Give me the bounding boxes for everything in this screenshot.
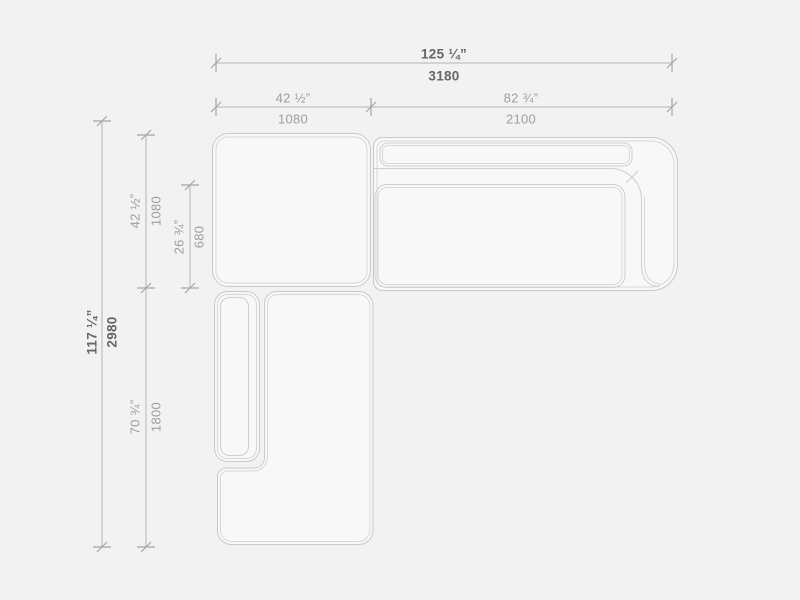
dim-seat-depth-mm: 680	[192, 226, 207, 249]
dim-total-depth-inches: 117 ¼”	[85, 309, 100, 354]
dim-sofa-width-mm: 2100	[506, 112, 536, 127]
dimension-drawing-canvas: 125 ¼” 3180 42 ½” 1080 82 ¾” 2100 117 ¼”…	[0, 0, 800, 600]
dim-total-depth-mm: 2980	[105, 316, 120, 347]
dim-sofa-width-inches: 82 ¾”	[504, 91, 539, 106]
corner-module	[213, 134, 371, 287]
dim-corner-width-inches: 42 ½”	[276, 91, 311, 106]
drawing-linework	[0, 0, 800, 600]
dim-corner-depth-mm: 1080	[149, 196, 164, 226]
dim-seat-depth-inches: 26 ¾”	[172, 220, 187, 255]
chaise-armrest	[215, 292, 260, 462]
sofa-module	[374, 138, 678, 291]
corner-module-outline	[213, 134, 371, 287]
dim-corner-width-mm: 1080	[278, 112, 308, 127]
dim-total-width-mm: 3180	[428, 69, 459, 84]
dim-total-width-inches: 125 ¼”	[421, 47, 467, 62]
dim-chaise-depth-mm: 1800	[149, 402, 164, 432]
chaise-module	[215, 292, 374, 545]
dim-corner-depth-inches: 42 ½”	[128, 194, 143, 229]
dim-chaise-depth-inches: 70 ¾”	[128, 400, 143, 435]
